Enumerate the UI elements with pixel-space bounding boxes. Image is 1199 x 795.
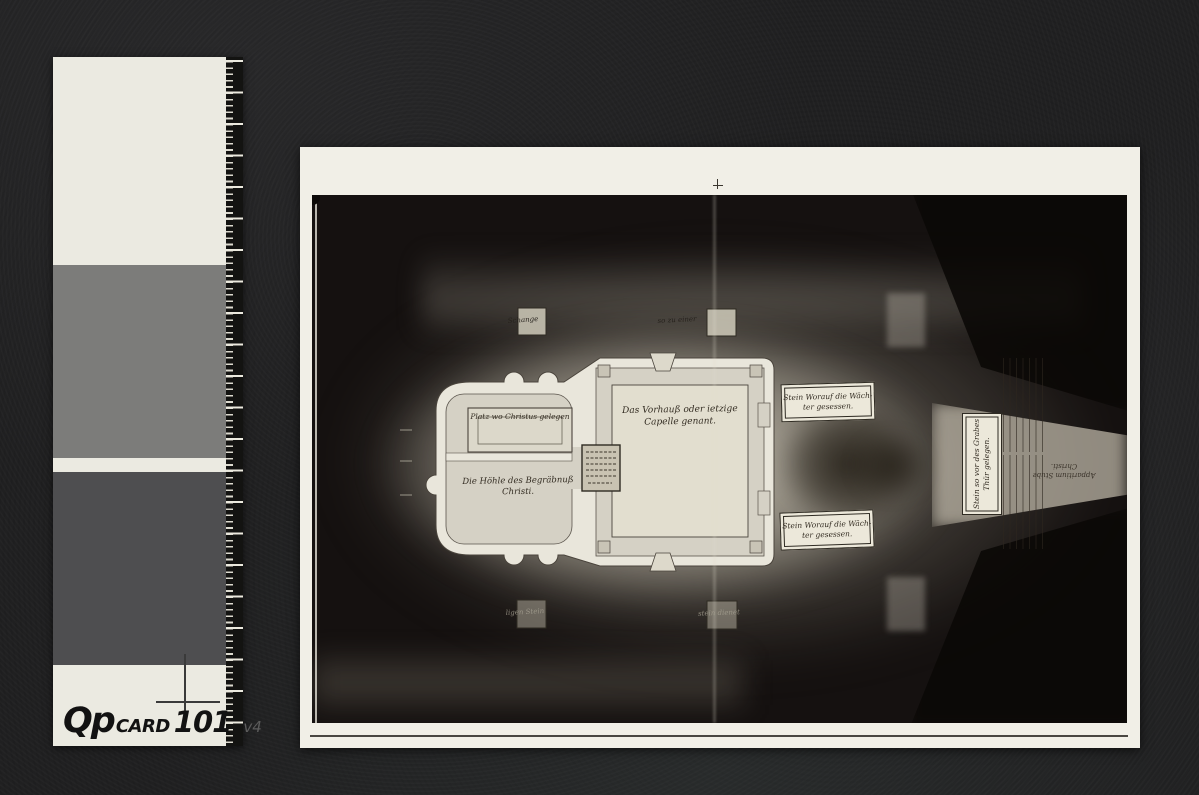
ruler-ticks-long xyxy=(226,60,243,744)
ruler-strip xyxy=(226,57,243,746)
door-stone-line1: Stein so vor des Grabes xyxy=(972,414,982,514)
calibration-card: Q p CARD 101 v4 xyxy=(53,57,243,746)
pier xyxy=(598,365,610,377)
border-cross-mark xyxy=(713,185,723,186)
archival-photograph: Platz wo Christus gelegen Die Höhle des … xyxy=(300,147,1140,748)
label-box-guard-stone-bottom: Stein Worauf die Wäch- ter gesessen. xyxy=(779,509,874,550)
label-chapel-line2: Capelle genant. xyxy=(644,416,716,427)
label-box-door-stone: Stein so vor des Grabes Thür gelegen. xyxy=(962,413,1002,515)
border-cross-mark xyxy=(717,179,718,189)
logo-q: Q xyxy=(63,701,91,741)
logo-number: 101 xyxy=(174,705,232,739)
wall-recess xyxy=(758,403,770,427)
label-burial-cave: Die Höhle des Begräbnuß Christi. xyxy=(448,475,588,500)
label-box-guard-stone-top: Stein Worauf die Wäch- ter gesessen. xyxy=(781,382,876,422)
label-burial-cave-line1: Die Höhle des Begräbnuß xyxy=(462,475,573,487)
dividing-wall xyxy=(446,453,572,461)
pier xyxy=(750,541,762,553)
apparition-line1: Apparitium Stube xyxy=(1033,471,1096,479)
plate-edge-line xyxy=(310,735,1128,737)
leather-background: Q p CARD 101 v4 xyxy=(0,0,1199,795)
logo-version: v4 xyxy=(243,718,261,736)
pier xyxy=(598,541,610,553)
label-chapel-line1: Das Vorhauß oder ietzige xyxy=(622,404,738,416)
label-burial-cave-line2: Christi. xyxy=(502,487,534,498)
illegible-note-upper xyxy=(1003,358,1043,452)
guard-stone-top-line2: ter gesessen. xyxy=(782,401,874,413)
guard-stone-bottom-line2: ter gesessen. xyxy=(781,528,873,541)
label-apparition: Apparitium Stube Christi. xyxy=(1012,461,1116,479)
label-chapel: Das Vorhauß oder ietzige Capelle genant. xyxy=(608,404,752,430)
logo-card: CARD xyxy=(116,716,170,737)
label-tomb-slab: Platz wo Christus gelegen xyxy=(464,412,576,422)
door-stone-line2: Thür gelegen. xyxy=(982,414,992,514)
apparition-line2: Christi. xyxy=(1051,462,1077,470)
gray-patch-mid xyxy=(53,265,243,458)
gray-patch-dark xyxy=(53,472,243,665)
pier xyxy=(750,365,762,377)
wall-recess xyxy=(758,491,770,515)
photo-negative-area: Platz wo Christus gelegen Die Höhle des … xyxy=(312,195,1127,723)
qpcard-logo: Q p CARD 101 v4 xyxy=(63,701,262,741)
logo-p: p xyxy=(91,701,115,741)
